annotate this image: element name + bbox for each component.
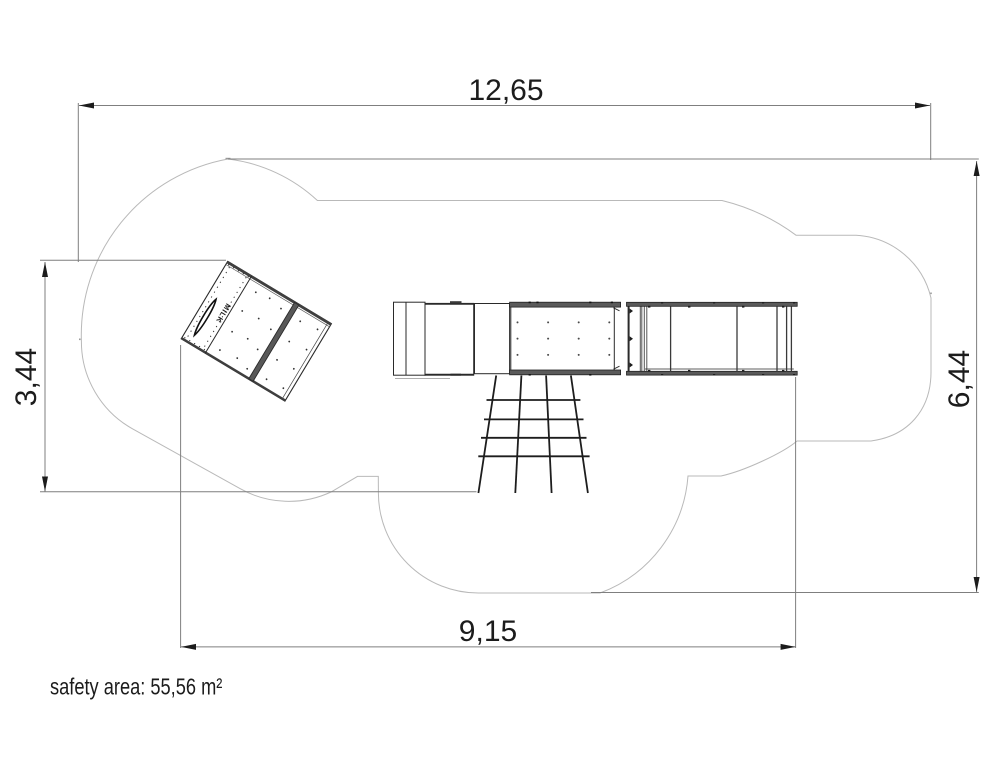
svg-text:12,65: 12,65 [468, 74, 543, 107]
svg-text:9,15: 9,15 [459, 615, 517, 648]
svg-text:safety area: 55,56 m²: safety area: 55,56 m² [50, 674, 222, 700]
svg-text:3,44: 3,44 [10, 348, 43, 406]
svg-text:6,44: 6,44 [943, 350, 976, 408]
